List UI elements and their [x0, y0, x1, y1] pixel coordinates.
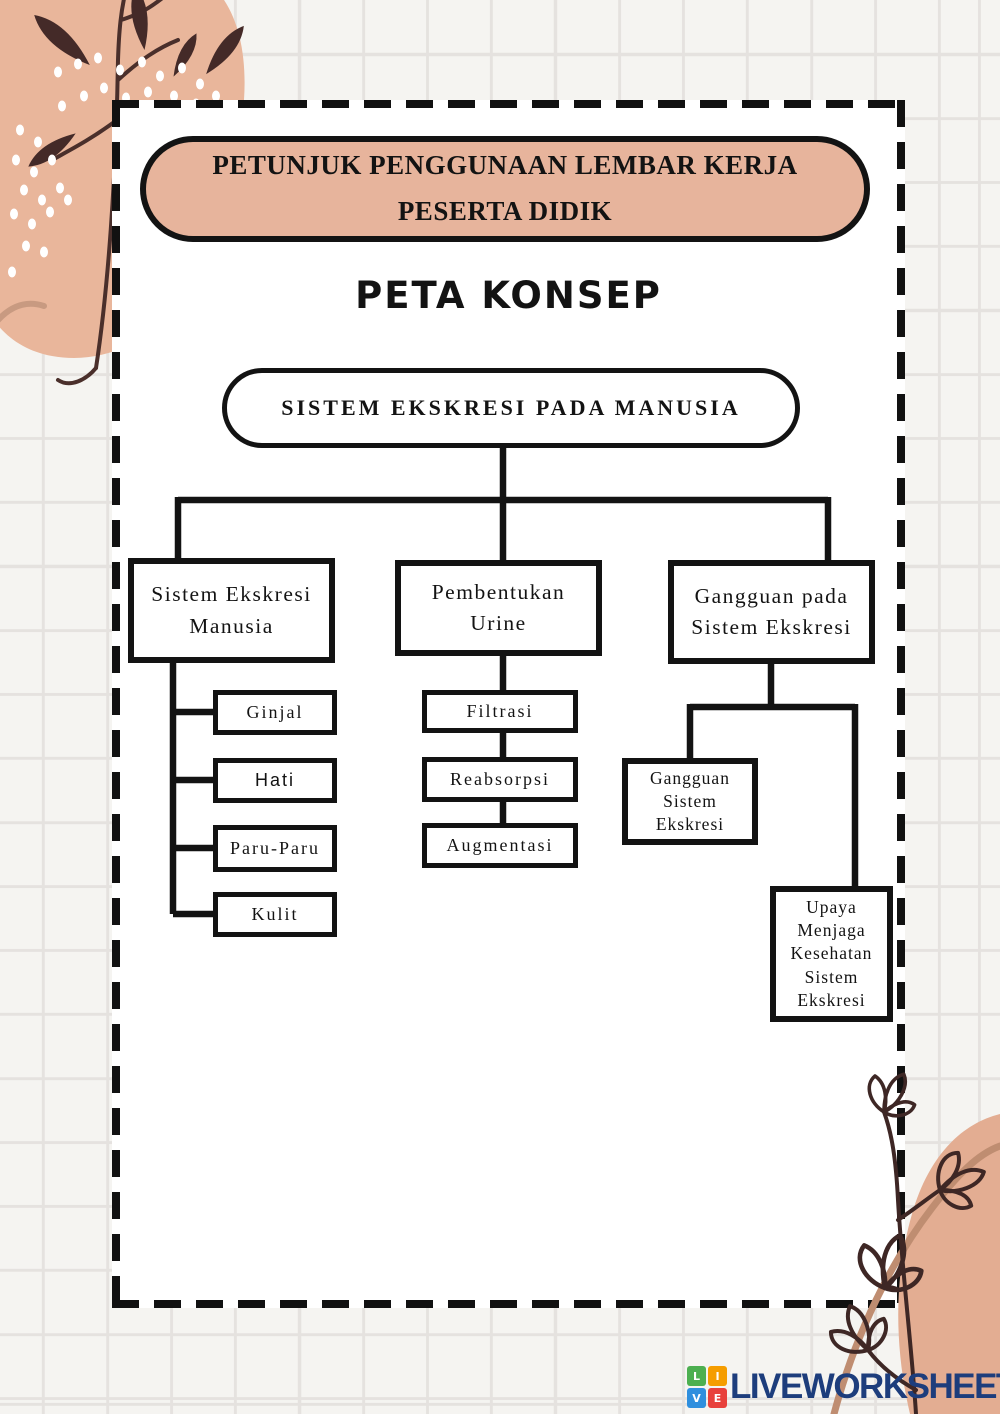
node-box-kulit: Kulit [213, 892, 337, 937]
node-box-pembentukan-urine: Pembentukan Urine [395, 560, 602, 656]
logo-tile-i: I [708, 1366, 727, 1386]
node-box-gangguan-pada-sistem-ekskresi: Gangguan pada Sistem Ekskresi [668, 560, 875, 664]
node-box-hati: Hati [213, 758, 337, 803]
node-box-ginjal: Ginjal [213, 690, 337, 735]
node-box-augmentasi: Augmentasi [422, 823, 578, 868]
node-box-gangguan-sistem-ekskresi: Gangguan Sistem Ekskresi [622, 758, 758, 845]
node-box-paru-paru: Paru-Paru [213, 825, 337, 872]
liveworksheets-wordmark: LIVEWORKSHEETS [730, 1367, 1000, 1407]
logo-tile-v: V [687, 1388, 706, 1408]
logo-tile-e: E [708, 1388, 727, 1408]
node-box-upaya-menjaga-kesehatan: Upaya Menjaga Kesehatan Sistem Ekskresi [770, 886, 893, 1022]
node-box-filtrasi: Filtrasi [422, 690, 578, 733]
node-box-reabsorpsi: Reabsorpsi [422, 757, 578, 802]
liveworksheets-grid-icon: L I V E [687, 1366, 727, 1408]
logo-tile-l: L [687, 1366, 706, 1386]
worksheet-panel: PETUNJUK PENGGUNAAN LEMBAR KERJA PESERTA… [112, 100, 905, 1308]
worksheet-page: { "header": { "banner": "PETUNJUK PENGGU… [0, 0, 1000, 1414]
liveworksheets-logo[interactable]: L I V E LIVEWORKSHEETS [687, 1364, 1000, 1410]
node-box-sistem-ekskresi-manusia: Sistem Ekskresi Manusia [128, 558, 335, 663]
